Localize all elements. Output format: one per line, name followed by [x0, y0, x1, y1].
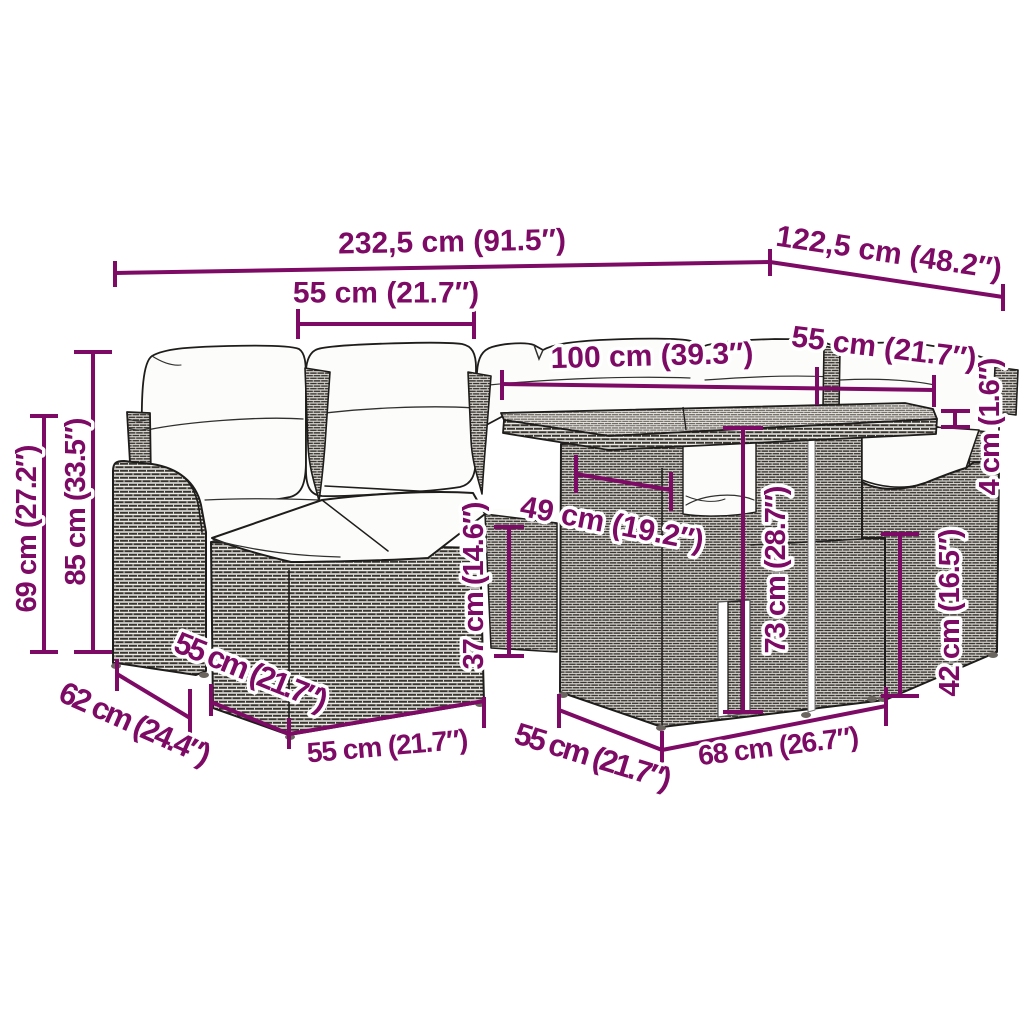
svg-text:37 cm (14.6″): 37 cm (14.6″) — [458, 502, 490, 669]
svg-text:73 cm (28.7″): 73 cm (28.7″) — [760, 486, 792, 653]
svg-text:232,5 cm (91.5″): 232,5 cm (91.5″) — [338, 224, 566, 261]
svg-text:100 cm (39.3″): 100 cm (39.3″) — [550, 337, 754, 375]
svg-text:42 cm (16.5″): 42 cm (16.5″) — [934, 529, 966, 696]
svg-text:69 cm (27.2″): 69 cm (27.2″) — [11, 445, 43, 612]
svg-text:85 cm (33.5″): 85 cm (33.5″) — [60, 418, 92, 585]
svg-text:55 cm (21.7″): 55 cm (21.7″) — [293, 277, 479, 310]
svg-text:4 cm (1.6″): 4 cm (1.6″) — [974, 358, 1006, 495]
